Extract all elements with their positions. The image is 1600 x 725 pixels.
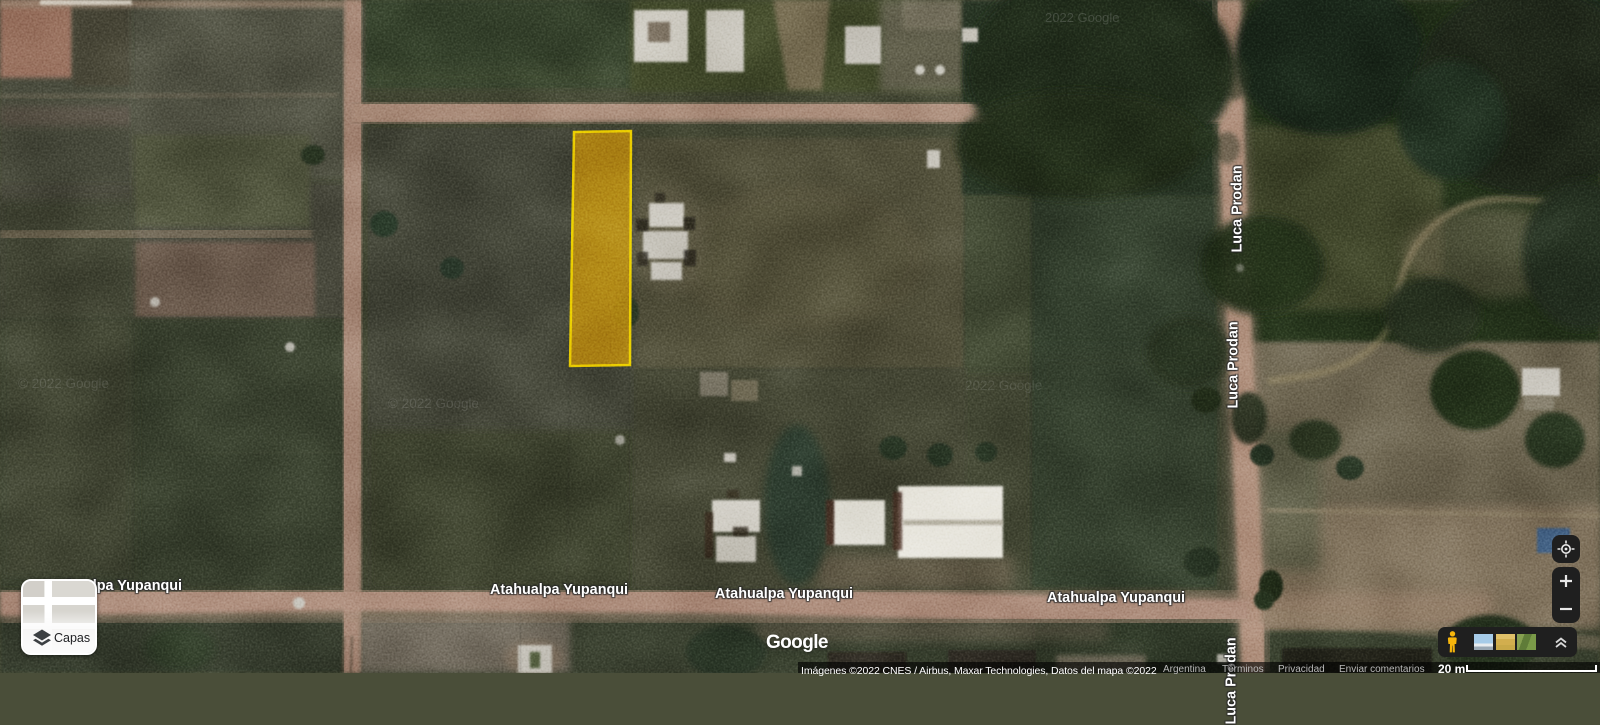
svg-text:2022 Google: 2022 Google [965, 378, 1042, 393]
svg-text:© 2022 Google: © 2022 Google [18, 376, 109, 391]
svg-text:© 2022 Google: © 2022 Google [388, 396, 479, 411]
svg-text:2022 Google: 2022 Google [1045, 10, 1119, 25]
